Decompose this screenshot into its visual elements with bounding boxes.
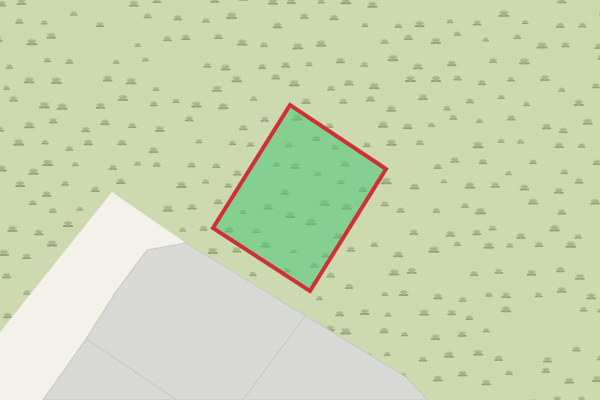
map-svg xyxy=(0,0,600,400)
map-canvas[interactable] xyxy=(0,0,600,400)
